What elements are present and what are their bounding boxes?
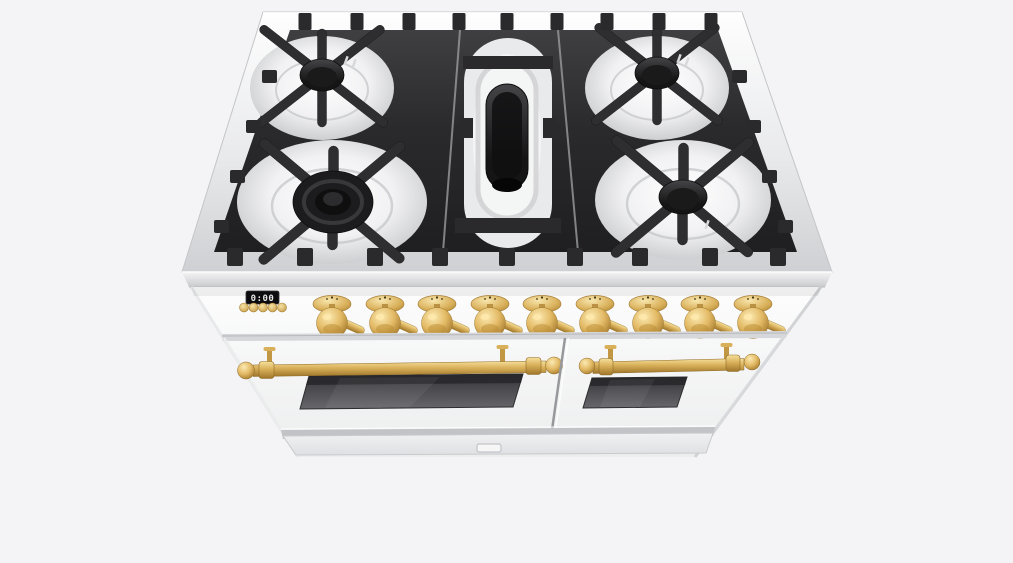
clock-button-row bbox=[240, 303, 287, 312]
clock-button-3[interactable] bbox=[259, 303, 268, 312]
scene: 0:00 bbox=[0, 0, 1013, 563]
right-oven-window bbox=[583, 377, 687, 408]
storage-drawer[interactable] bbox=[283, 433, 713, 455]
drawer-latch[interactable] bbox=[477, 444, 501, 452]
cooktop bbox=[182, 12, 832, 287]
clock-button-4[interactable] bbox=[268, 303, 277, 312]
burner-back-left bbox=[300, 59, 344, 91]
burner-center bbox=[486, 84, 528, 192]
left-oven-window bbox=[300, 374, 523, 409]
burner-back-right bbox=[635, 57, 679, 89]
clock-button-2[interactable] bbox=[249, 303, 258, 312]
clock-button-1[interactable] bbox=[240, 303, 249, 312]
burner-front-right bbox=[659, 180, 707, 214]
clock-button-5[interactable] bbox=[278, 303, 287, 312]
range-cooker: 0:00 bbox=[182, 12, 832, 457]
burner-front-left bbox=[293, 171, 373, 233]
cooktop-front-lip bbox=[182, 272, 832, 287]
clock-display-value: 0:00 bbox=[251, 294, 275, 304]
clock-display: 0:00 bbox=[246, 291, 279, 304]
